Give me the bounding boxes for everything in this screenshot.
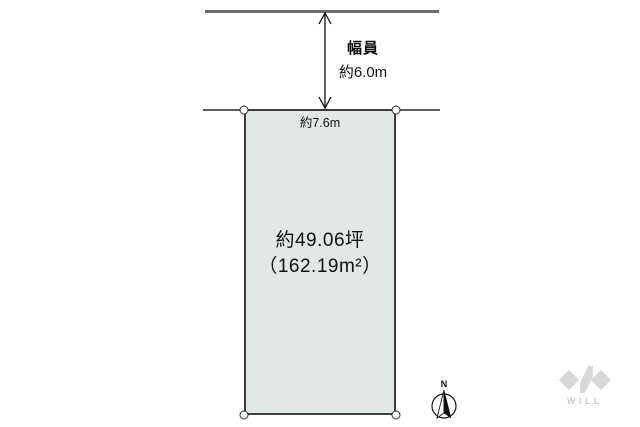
area-m2: （162.19m²） (234, 254, 406, 280)
road-width-value: 約6.0m (328, 61, 398, 82)
road-width-title: 幅員 (328, 37, 398, 58)
compass-icon: N (430, 375, 460, 425)
will-logo-zigzag (580, 366, 593, 393)
corner-marker-bottom-right (392, 411, 401, 420)
will-logo: WILL (553, 362, 617, 410)
compass-north-label: N (441, 379, 448, 389)
corner-marker-bottom-left (240, 411, 249, 420)
frontage-label: 約7.6m (244, 112, 396, 131)
will-logo-text: WILL (567, 396, 603, 406)
road-width-label: 幅員 約6.0m (328, 37, 398, 82)
lot-layout-diagram: 幅員 約6.0m 約7.6m 約49.06坪 （162.19m²） N WILL (0, 0, 640, 427)
area-label: 約49.06坪 （162.19m²） (234, 228, 406, 280)
will-logo-diamond-left (559, 370, 579, 390)
will-logo-diamond-right (591, 370, 611, 390)
area-tsubo: 約49.06坪 (234, 228, 406, 254)
